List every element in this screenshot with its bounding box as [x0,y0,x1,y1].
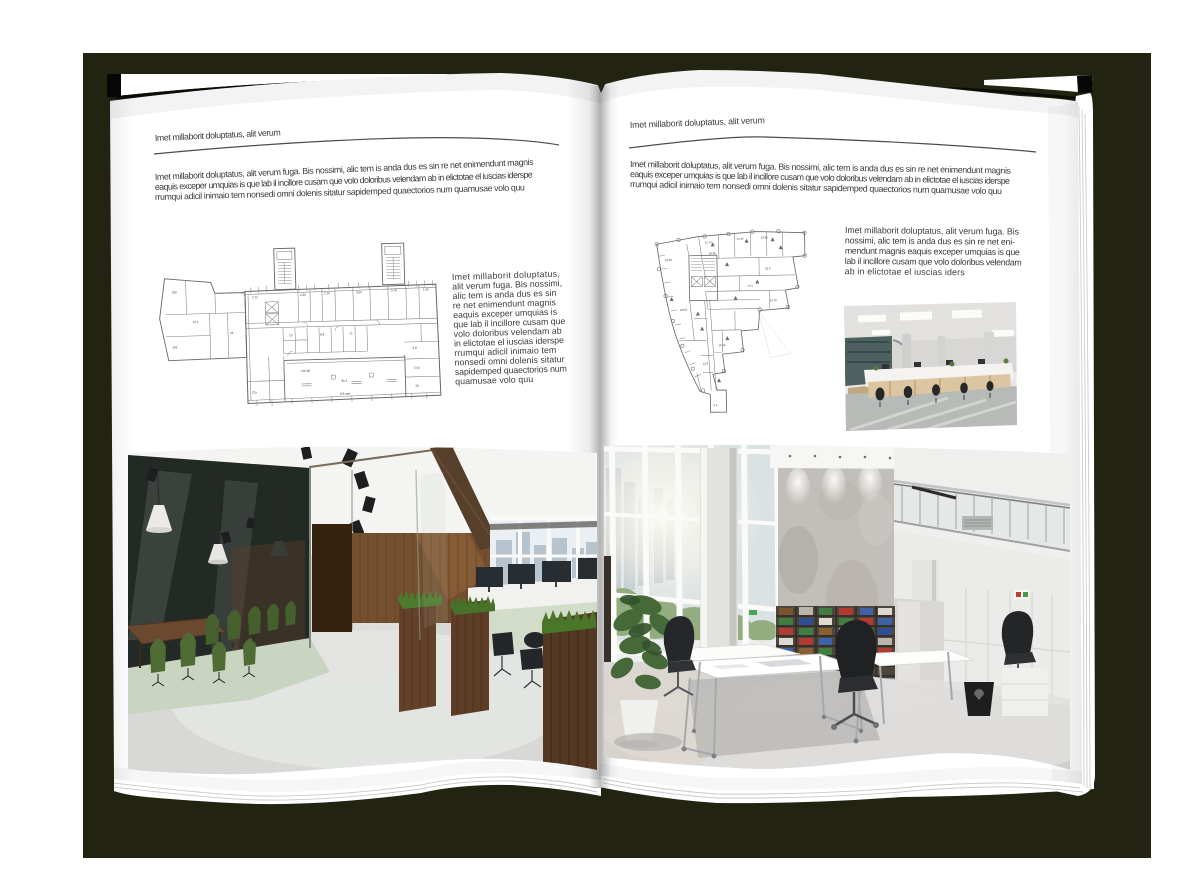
svg-text:14.45: 14.45 [737,237,745,241]
svg-text:14.2: 14.2 [747,284,753,288]
svg-text:37.1: 37.1 [193,320,199,324]
svg-text:1.45: 1.45 [423,287,429,291]
svg-text:206: 206 [172,290,177,294]
svg-text:18.65: 18.65 [665,258,673,262]
svg-text:86.3: 86.3 [341,379,347,383]
svg-text:12a: 12a [252,390,257,394]
svg-text:165.8: 165.8 [680,308,688,312]
svg-text:2.75: 2.75 [252,295,258,299]
svg-text:2-й зал: 2-й зал [340,392,351,396]
svg-text:25.6: 25.6 [765,266,771,270]
svg-text:9.3: 9.3 [713,403,717,407]
svg-text:12.9: 12.9 [703,361,709,365]
svg-text:9.8: 9.8 [412,346,417,350]
svg-text:13.35: 13.35 [761,235,769,239]
svg-text:50: 50 [416,384,420,388]
svg-text:15.45: 15.45 [718,343,726,347]
svg-text:5.54: 5.54 [414,366,420,370]
svg-text:8.8: 8.8 [320,332,325,336]
svg-text:3.09: 3.09 [356,290,362,294]
svg-text:16.65: 16.65 [709,251,717,255]
svg-text:72: 72 [349,332,353,336]
svg-text:2.30: 2.30 [300,293,306,297]
svg-text:19.75: 19.75 [770,298,778,302]
svg-text:266: 266 [172,345,177,349]
svg-text:2.10: 2.10 [324,291,330,295]
svg-text:542.80: 542.80 [301,369,311,373]
svg-text:ab in elictotae el iuscias ide: ab in elictotae el iuscias iders [845,266,966,277]
svg-text:26: 26 [230,331,234,335]
svg-text:12.70: 12.70 [705,240,713,244]
svg-text:10: 10 [289,333,293,337]
